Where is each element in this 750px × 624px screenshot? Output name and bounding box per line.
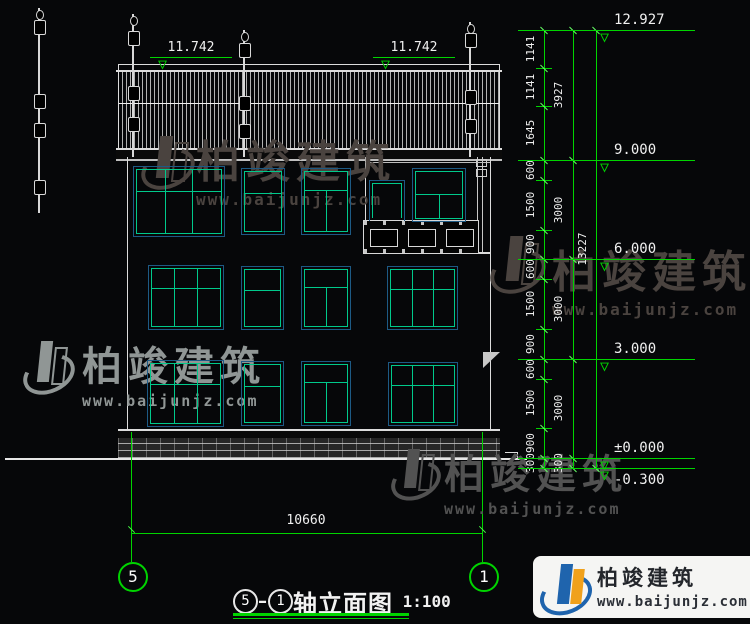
watermark-text: 柏竣建筑 xyxy=(196,126,396,190)
company-logo-icon xyxy=(539,562,595,612)
dim-value-label: 13227 xyxy=(576,221,590,277)
finial-collar xyxy=(239,43,251,58)
elevation-triangle-icon: ▽ xyxy=(600,160,616,176)
window-mullion-vertical xyxy=(326,287,327,326)
window-transom xyxy=(245,386,280,387)
dim-chain-line xyxy=(544,30,545,468)
dim-value-label: 300 xyxy=(524,435,538,491)
window xyxy=(387,266,458,330)
elevation-drawing-canvas: ▽ 11.742 ▽ 11.742 10660 5 1 5–1轴立面图 1:10… xyxy=(0,0,750,624)
window-inner-frame xyxy=(244,364,281,423)
window-mullion-vertical xyxy=(174,364,175,423)
window-mullion-vertical xyxy=(439,194,440,218)
dim-value-label: 300 xyxy=(552,435,566,491)
elevation-label: 9.000 xyxy=(614,142,694,158)
dim-value-label: 3000 xyxy=(552,281,566,337)
finial-collar xyxy=(465,119,477,134)
window xyxy=(241,266,284,330)
window-inner-frame xyxy=(244,269,281,327)
window-inner-frame xyxy=(244,171,282,232)
window-inner-frame xyxy=(372,183,402,218)
window xyxy=(301,168,351,235)
watermark-url: www.baijunjz.com xyxy=(552,300,750,319)
dim-chain-line xyxy=(596,30,597,468)
window-inner-frame xyxy=(304,171,348,232)
window-transom xyxy=(245,290,280,291)
elevation-triangle-icon: ▽ xyxy=(600,259,616,275)
side-canopy xyxy=(483,352,500,368)
watermark-logo-icon xyxy=(388,446,442,504)
railing-panel xyxy=(370,229,398,247)
window xyxy=(241,361,284,426)
title-underline-thin xyxy=(233,618,409,619)
finial-collar xyxy=(34,94,46,109)
finial-ball xyxy=(36,10,44,20)
window-transom xyxy=(137,191,221,192)
wall-vent-upper xyxy=(476,159,487,167)
finial-ball xyxy=(241,32,249,42)
roof-finial xyxy=(127,14,139,157)
wall-vent-lower xyxy=(476,169,487,177)
window xyxy=(241,168,285,235)
window-mullion-vertical xyxy=(412,270,413,326)
window-mullion-vertical xyxy=(192,170,193,233)
window-inner-frame xyxy=(150,363,221,424)
roof-finial xyxy=(33,8,45,213)
window xyxy=(147,360,224,427)
watermark-logo-icon xyxy=(20,338,76,398)
window-inner-frame xyxy=(391,365,455,423)
company-logo-card: 柏竣建筑 www.baijunjz.com xyxy=(533,556,750,618)
elevation-triangle-icon: ▽ xyxy=(600,30,616,46)
finial-ball xyxy=(130,16,138,26)
finial-collar xyxy=(239,96,251,111)
window-inner-frame xyxy=(415,171,463,219)
elevation-label: 3.000 xyxy=(614,341,694,357)
bottom-dim-line xyxy=(131,533,483,534)
dim-value-label: 3927 xyxy=(552,67,566,123)
roof-left-edge xyxy=(118,64,119,157)
title-dash: – xyxy=(258,591,268,612)
top-elev-triangle-right: ▽ xyxy=(381,57,390,72)
window xyxy=(133,166,225,237)
window xyxy=(301,361,351,426)
finial-collar xyxy=(128,31,140,46)
window-mullion-vertical xyxy=(412,366,413,422)
top-elev-triangle-left: ▽ xyxy=(158,57,167,72)
window-mullion-vertical xyxy=(433,366,434,422)
elevation-label: 6.000 xyxy=(614,241,694,257)
elevation-label: 12.927 xyxy=(614,12,694,28)
window-transom xyxy=(392,385,454,386)
window-mullion-vertical xyxy=(197,269,198,326)
watermark-top: 柏竣建筑 www.baijunjz.com xyxy=(196,126,396,209)
window-mullion-vertical xyxy=(165,170,166,233)
title-axis-bubble-1: 1 xyxy=(268,589,293,614)
railing-panel xyxy=(408,229,436,247)
window-mullion-vertical xyxy=(326,382,327,422)
window-transom xyxy=(245,193,281,194)
window-mullion-vertical xyxy=(326,190,327,231)
finial-collar xyxy=(465,90,477,105)
dim-value-label: 3000 xyxy=(552,182,566,238)
window xyxy=(388,362,458,426)
dim-chain-line xyxy=(573,30,574,468)
window-transom xyxy=(152,288,220,289)
company-logo-url: www.baijunjz.com xyxy=(597,594,748,610)
window-transom xyxy=(151,384,220,385)
window-mullion-vertical xyxy=(197,364,198,423)
finial-collar xyxy=(465,33,477,48)
watermark-logo-icon xyxy=(487,232,547,298)
window xyxy=(412,168,466,222)
dim-value-label: 3000 xyxy=(552,380,566,436)
axis-bubble-5: 5 xyxy=(118,562,148,592)
window-inner-frame xyxy=(304,269,348,327)
window-inner-frame xyxy=(304,364,348,423)
window-mullion-vertical xyxy=(433,270,434,326)
roof-ridge-line-upper xyxy=(118,64,500,65)
top-elev-label-left: 11.742 xyxy=(150,40,232,55)
roof-finial xyxy=(238,30,250,157)
title-axis-bubble-5: 5 xyxy=(233,589,258,614)
railing-panel xyxy=(446,229,474,247)
title-underline-thick xyxy=(233,613,409,616)
window-inner-frame xyxy=(151,268,221,327)
watermark-url: www.baijunjz.com xyxy=(444,500,628,518)
window xyxy=(148,265,224,330)
finial-collar xyxy=(34,180,46,195)
balcony-door xyxy=(369,180,405,221)
watermark-url: www.baijunjz.com xyxy=(196,190,396,209)
drawing-scale: 1:100 xyxy=(403,592,451,611)
company-logo-name: 柏竣建筑 xyxy=(597,562,697,592)
window xyxy=(301,266,351,330)
elevation-label: -0.300 xyxy=(614,472,694,488)
finial-collar xyxy=(128,117,140,132)
window-transom xyxy=(391,289,454,290)
finial-collar xyxy=(128,86,140,101)
brick-plinth xyxy=(118,438,500,458)
roof-seam-line xyxy=(118,103,500,104)
window-mullion-vertical xyxy=(174,269,175,326)
balcony-railing xyxy=(363,220,479,254)
finial-collar xyxy=(34,20,46,35)
bottom-width-label: 10660 xyxy=(256,513,356,528)
top-elev-label-right: 11.742 xyxy=(373,40,455,55)
finial-collar xyxy=(34,123,46,138)
roof-finial xyxy=(464,22,476,157)
roof-right-edge xyxy=(499,64,500,157)
window-inner-frame xyxy=(136,169,222,234)
finial-collar xyxy=(239,124,251,139)
axis-line-5 xyxy=(131,432,132,562)
window-inner-frame xyxy=(390,269,455,327)
elevation-label: ±0.000 xyxy=(614,440,694,456)
axis-bubble-1: 1 xyxy=(469,562,499,592)
elevation-triangle-icon: ▽ xyxy=(600,359,616,375)
